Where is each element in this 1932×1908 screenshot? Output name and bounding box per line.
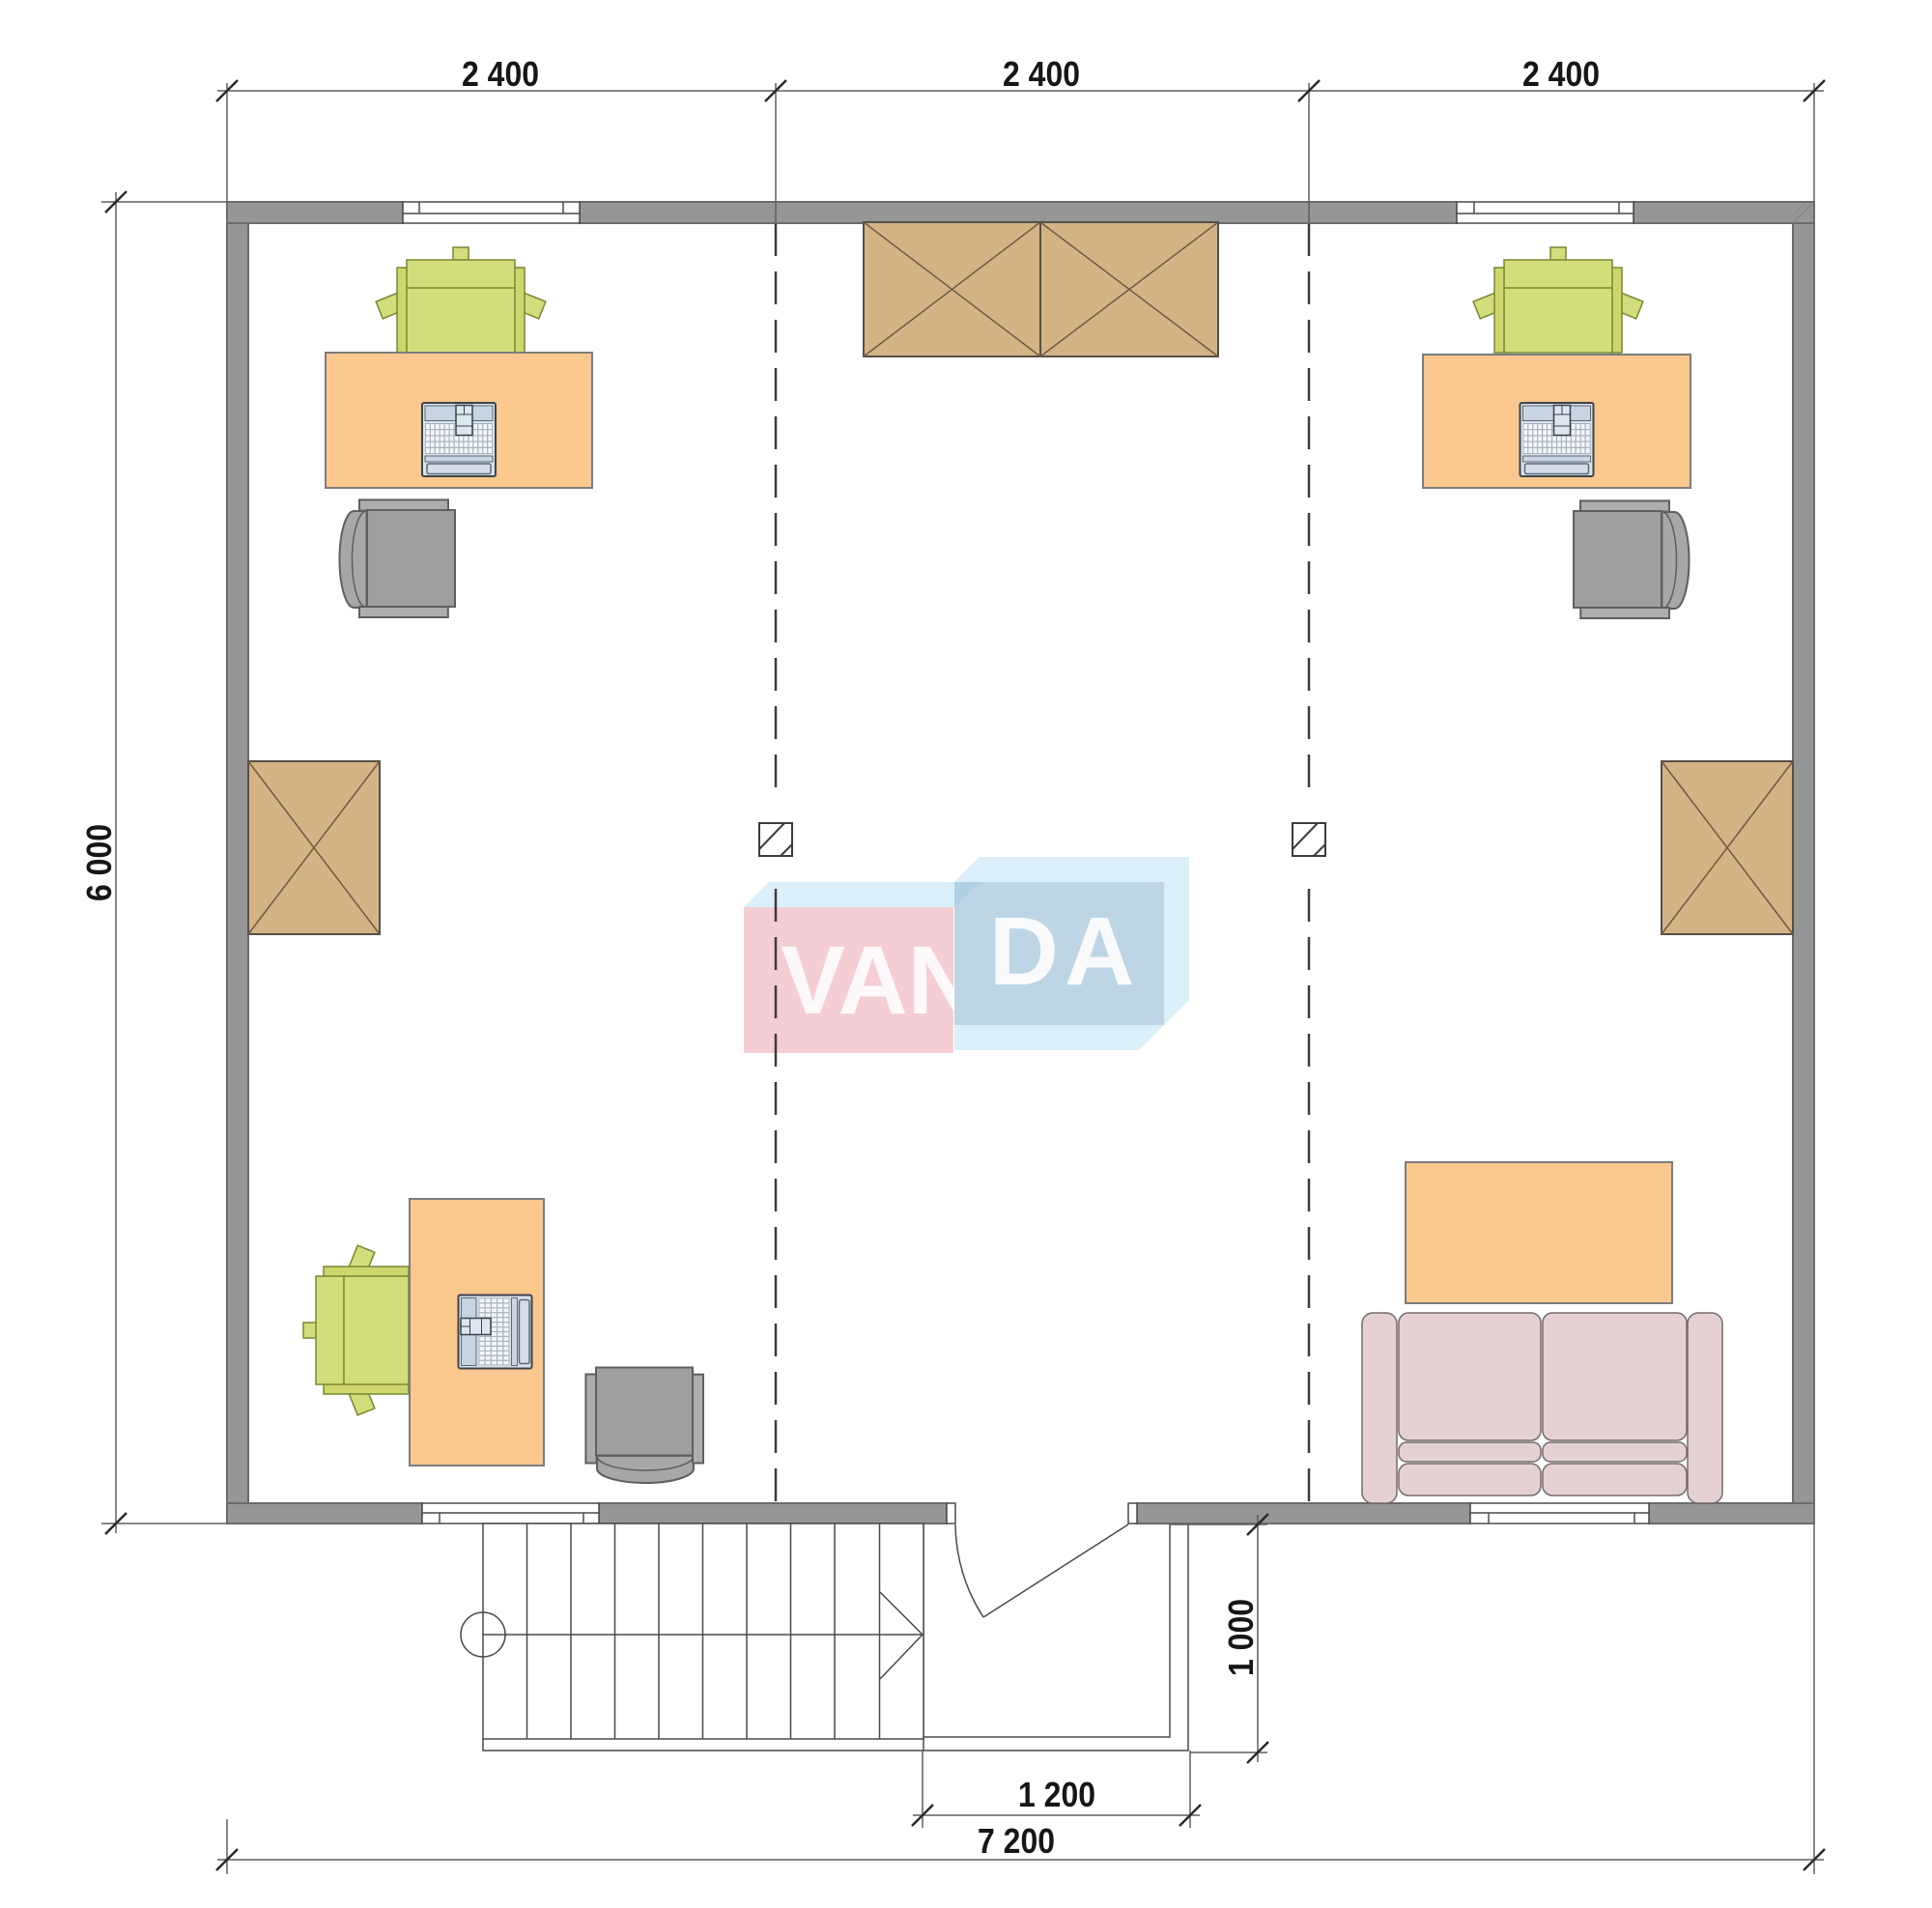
- svg-text:6 000: 6 000: [79, 824, 119, 901]
- svg-text:VAN: VAN: [781, 926, 978, 1035]
- svg-text:7 200: 7 200: [978, 1821, 1055, 1861]
- svg-text:DA: DA: [989, 897, 1140, 1006]
- svg-text:2 400: 2 400: [462, 54, 539, 94]
- svg-text:2 400: 2 400: [1003, 54, 1080, 94]
- svg-text:2 400: 2 400: [1522, 54, 1600, 94]
- svg-text:1 000: 1 000: [1221, 1599, 1261, 1676]
- svg-text:1 200: 1 200: [1018, 1775, 1095, 1814]
